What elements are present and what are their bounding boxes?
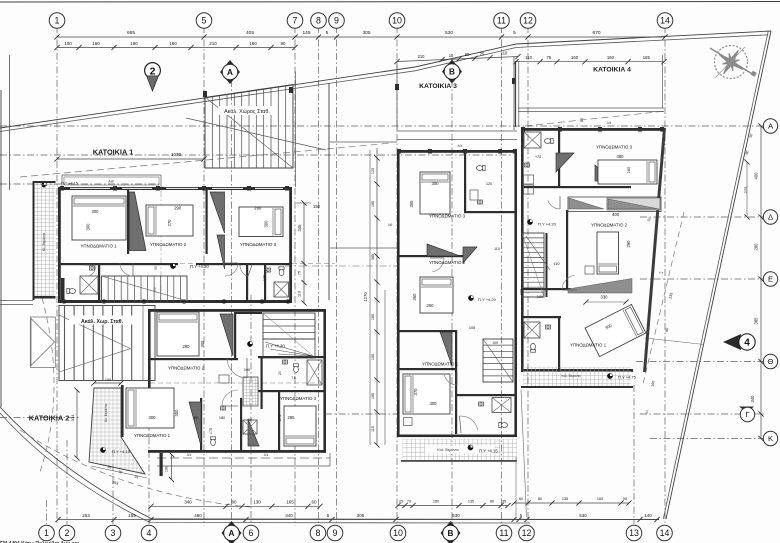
svg-text:160: 160 <box>371 201 375 207</box>
svg-text:300: 300 <box>432 181 440 186</box>
svg-text:160: 160 <box>371 393 375 399</box>
svg-text:170: 170 <box>209 428 213 434</box>
svg-text:105: 105 <box>469 326 475 330</box>
svg-text:5: 5 <box>202 16 207 26</box>
svg-text:75: 75 <box>546 55 551 60</box>
svg-text:130: 130 <box>253 500 261 505</box>
svg-text:100: 100 <box>492 341 498 345</box>
svg-text:290: 290 <box>174 206 182 211</box>
svg-text:60: 60 <box>519 497 523 501</box>
svg-text:1: 1 <box>55 16 60 26</box>
svg-text:1270: 1270 <box>363 292 368 302</box>
svg-text:11: 11 <box>497 16 506 26</box>
svg-text:355: 355 <box>409 200 414 208</box>
svg-text:ΚΑΤΟΙΚΙΑ 1: ΚΑΤΟΙΚΙΑ 1 <box>93 148 134 157</box>
svg-text:Α/ε: Α/ε <box>458 144 463 148</box>
svg-text:100: 100 <box>165 466 169 472</box>
svg-text:ΥΠΝΟΔΩΜΑΤΙΟ 1: ΥΠΝΟΔΩΜΑΤΙΟ 1 <box>422 362 459 367</box>
svg-text:5: 5 <box>513 30 516 36</box>
svg-text:340: 340 <box>750 395 755 403</box>
svg-text:110: 110 <box>298 291 302 297</box>
svg-text:25: 25 <box>399 500 403 504</box>
svg-text:A: A <box>227 68 233 77</box>
svg-text:140: 140 <box>644 513 652 518</box>
svg-text:70: 70 <box>407 500 411 504</box>
svg-text:290: 290 <box>626 240 631 248</box>
svg-text:9: 9 <box>334 16 339 26</box>
svg-text:285: 285 <box>288 415 296 420</box>
svg-text:8: 8 <box>316 528 321 538</box>
svg-text:110: 110 <box>525 55 532 60</box>
svg-text:100: 100 <box>520 289 524 295</box>
svg-text:460: 460 <box>194 513 202 518</box>
svg-text:Π.Υ +4.15: Π.Υ +4.15 <box>112 449 131 454</box>
svg-text:160: 160 <box>169 41 177 46</box>
svg-text:160: 160 <box>607 55 615 60</box>
svg-text:1070: 1070 <box>171 152 182 157</box>
svg-text:75: 75 <box>480 52 485 57</box>
svg-text:340: 340 <box>184 500 192 505</box>
svg-text:Α/ε: Α/ε <box>264 453 269 457</box>
svg-text:4: 4 <box>744 338 750 349</box>
svg-text:K: K <box>768 434 773 443</box>
svg-text:ΚΑΤΟΙΚΙΑ 2: ΚΑΤΟΙΚΙΑ 2 <box>29 414 70 423</box>
svg-text:ΥΠΝΟΔΩΜΑΤΙΟ 2: ΥΠΝΟΔΩΜΑΤΙΟ 2 <box>150 242 187 247</box>
svg-text:80: 80 <box>490 500 494 504</box>
svg-text:290: 290 <box>183 344 191 349</box>
svg-text:300: 300 <box>92 209 100 214</box>
svg-text:Π.Υ +4.20: Π.Υ +4.20 <box>538 222 557 227</box>
svg-text:ΥΠΝΟΔΩΜΑΤΙΟ 3: ΥΠΝΟΔΩΜΑΤΙΟ 3 <box>280 396 317 401</box>
svg-text:Κλ. Βεράντα: Κλ. Βεράντα <box>104 404 108 422</box>
svg-text:A: A <box>229 529 235 538</box>
svg-text:365: 365 <box>371 254 375 260</box>
svg-text:Ακάλ. Χώρος Σταθ.: Ακάλ. Χώρος Σταθ. <box>224 108 270 115</box>
svg-text:120: 120 <box>371 168 375 174</box>
svg-text:150: 150 <box>313 204 321 209</box>
svg-text:160: 160 <box>571 55 579 60</box>
svg-text:530: 530 <box>452 513 460 518</box>
svg-text:400: 400 <box>754 172 759 180</box>
svg-text:Ακάλ. Χωρ. Σταθ.: Ακάλ. Χωρ. Σταθ. <box>81 319 123 325</box>
svg-text:60: 60 <box>311 500 317 505</box>
svg-text:80: 80 <box>665 327 670 332</box>
svg-text:80: 80 <box>538 497 542 501</box>
svg-text:100: 100 <box>153 287 157 293</box>
svg-text:35: 35 <box>502 500 506 504</box>
svg-text:160: 160 <box>371 314 375 320</box>
svg-text:160: 160 <box>249 41 257 46</box>
svg-text:Κλ. Βεράντα: Κλ. Βεράντα <box>42 233 46 251</box>
svg-text:Κολ. Βεράντα: Κολ. Βεράντα <box>437 448 458 452</box>
svg-text:15: 15 <box>449 53 454 58</box>
svg-text:305: 305 <box>200 340 205 348</box>
svg-text:253: 253 <box>82 513 90 518</box>
svg-text:160: 160 <box>433 500 439 504</box>
svg-text:305: 305 <box>362 30 370 36</box>
svg-text:ΥΠΝΟΔΩΜΑΤΙΟ 1: ΥΠΝΟΔΩΜΑΤΙΟ 1 <box>570 343 607 348</box>
svg-text:270: 270 <box>277 414 282 422</box>
svg-text:20: 20 <box>278 371 282 375</box>
svg-text:280: 280 <box>754 243 759 251</box>
svg-text:Α/ε: Α/ε <box>659 271 664 275</box>
svg-text:7: 7 <box>293 16 298 26</box>
svg-text:13: 13 <box>629 528 639 538</box>
svg-text:370: 370 <box>413 388 418 396</box>
svg-text:145: 145 <box>302 30 310 36</box>
svg-text:6: 6 <box>249 528 254 538</box>
svg-text:ΥΠΝΟΔΩΜΑΤΙΟ 2: ΥΠΝΟΔΩΜΑΤΙΟ 2 <box>429 260 466 265</box>
svg-text:Τ.Ε.: Τ.Ε. <box>291 376 297 380</box>
svg-text:ΥΠΝΟΔΩΜΑΤΙΟ 3: ΥΠΝΟΔΩΜΑΤΙΟ 3 <box>240 242 277 247</box>
svg-text:110: 110 <box>501 51 508 56</box>
svg-text:5: 5 <box>326 30 329 36</box>
svg-text:80: 80 <box>580 118 584 122</box>
svg-text:Π.Υ +4.75: Π.Υ +4.75 <box>618 375 637 380</box>
svg-text:2: 2 <box>65 528 70 538</box>
svg-text:95: 95 <box>154 266 158 270</box>
svg-text:Αίθ: Αίθ <box>108 180 113 184</box>
svg-text:334: 334 <box>70 414 75 421</box>
svg-text:Δ: Δ <box>768 213 773 222</box>
svg-text:100: 100 <box>105 378 111 382</box>
svg-text:135: 135 <box>562 497 568 501</box>
svg-text:180: 180 <box>219 416 225 420</box>
svg-text:300: 300 <box>263 220 268 228</box>
svg-text:E: E <box>768 275 773 284</box>
svg-text:60: 60 <box>465 52 470 57</box>
svg-text:Α/ε: Α/ε <box>607 121 612 125</box>
svg-text:110: 110 <box>553 262 559 266</box>
svg-text:90: 90 <box>280 41 286 46</box>
svg-text:75: 75 <box>298 271 302 275</box>
svg-text:ΚΑΤΟΙΚΙΑ 3: ΚΑΤΟΙΚΙΑ 3 <box>419 83 457 90</box>
svg-text:305: 305 <box>357 513 365 518</box>
svg-text:670: 670 <box>592 30 600 36</box>
svg-text:80: 80 <box>231 500 237 505</box>
svg-text:Π.Υ +4.15: Π.Υ +4.15 <box>61 182 78 186</box>
svg-text:3: 3 <box>111 528 116 538</box>
svg-text:260: 260 <box>427 303 435 308</box>
svg-text:Π.Υ +4.20: Π.Υ +4.20 <box>478 297 497 302</box>
svg-text:ΥΠΝΟΔΩΜΑΤΙΟ 1: ΥΠΝΟΔΩΜΑΤΙΟ 1 <box>134 433 171 438</box>
svg-text:300: 300 <box>430 401 438 406</box>
svg-text:165: 165 <box>643 55 651 60</box>
svg-text:14: 14 <box>660 16 670 26</box>
svg-text:ΚΑΤΟΙΚΙΑ 4: ΚΑΤΟΙΚΙΑ 4 <box>593 67 631 74</box>
svg-text:135: 135 <box>468 500 474 504</box>
svg-text:405: 405 <box>246 30 254 36</box>
svg-text:8: 8 <box>316 16 321 26</box>
svg-text:12: 12 <box>522 528 532 538</box>
svg-text:Π.Υ +4.20: Π.Υ +4.20 <box>266 344 285 349</box>
svg-text:110: 110 <box>494 247 500 251</box>
svg-text:270: 270 <box>167 219 172 227</box>
svg-text:95: 95 <box>623 497 627 501</box>
svg-text:Π.Υ +4.15: Π.Υ +4.15 <box>479 449 498 454</box>
svg-text:530: 530 <box>445 30 453 36</box>
svg-text:60: 60 <box>194 416 198 420</box>
svg-text:120: 120 <box>486 182 492 186</box>
svg-text:10: 10 <box>392 16 402 26</box>
svg-text:ΥΠΝΟΔΩΜΑΤΙΟ 3: ΥΠΝΟΔΩΜΑΤΙΟ 3 <box>596 145 633 150</box>
svg-text:190: 190 <box>371 354 375 360</box>
svg-text:170: 170 <box>263 275 267 281</box>
svg-text:B: B <box>449 68 455 77</box>
svg-text:385: 385 <box>754 317 759 325</box>
svg-text:400: 400 <box>612 212 620 217</box>
svg-text:ΥΠΝΟΔΩΜΑΤΙΟ 3: ΥΠΝΟΔΩΜΑΤΙΟ 3 <box>429 214 466 219</box>
svg-text:210: 210 <box>418 54 426 59</box>
svg-text:285: 285 <box>626 166 631 173</box>
svg-text:330: 330 <box>601 295 609 300</box>
svg-text:11: 11 <box>499 528 508 538</box>
svg-text:360: 360 <box>412 293 417 301</box>
svg-text:ΥΠΝΟΔΩΜΑΤΙΟ 1: ΥΠΝΟΔΩΜΑΤΙΟ 1 <box>80 244 117 249</box>
svg-text:Κολ. Βεράντα: Κολ. Βεράντα <box>561 374 580 378</box>
svg-text:160: 160 <box>92 41 100 46</box>
svg-text:Γ: Γ <box>745 410 749 419</box>
svg-text:1: 1 <box>44 528 49 538</box>
svg-text:380: 380 <box>617 154 625 159</box>
svg-text:210: 210 <box>209 41 217 46</box>
svg-text:300: 300 <box>149 415 157 420</box>
svg-text:4: 4 <box>147 528 152 538</box>
svg-text:10: 10 <box>393 528 403 538</box>
svg-text:340: 340 <box>285 513 293 518</box>
svg-text:300: 300 <box>86 223 91 231</box>
svg-text:+70: +70 <box>535 155 541 159</box>
svg-text:ΥΠΝΟΔΩΜΑΤΙΟ 2: ΥΠΝΟΔΩΜΑΤΙΟ 2 <box>168 366 205 371</box>
svg-text:530: 530 <box>579 513 587 518</box>
svg-text:665: 665 <box>127 30 135 36</box>
svg-text:190: 190 <box>130 41 138 46</box>
svg-text:Αίθ: Αίθ <box>388 223 393 227</box>
svg-text:14: 14 <box>660 528 670 538</box>
svg-text:Π.Υ +4.20: Π.Υ +4.20 <box>190 264 209 269</box>
svg-text:160: 160 <box>597 497 603 501</box>
svg-text:Α/ε: Α/ε <box>187 453 192 457</box>
svg-text:100: 100 <box>64 41 72 46</box>
svg-text:290: 290 <box>254 206 262 211</box>
svg-text:ΥΠΝΟΔΩΜΑΤΙΟ 2: ΥΠΝΟΔΩΜΑΤΙΟ 2 <box>591 223 628 228</box>
svg-text:9: 9 <box>333 528 338 538</box>
svg-text:12: 12 <box>523 16 533 26</box>
svg-text:100: 100 <box>537 295 543 299</box>
svg-text:165: 165 <box>286 500 294 505</box>
svg-text:300: 300 <box>174 409 179 417</box>
svg-text:155: 155 <box>128 513 136 518</box>
svg-text:345: 345 <box>297 224 302 232</box>
svg-text:115: 115 <box>371 426 375 432</box>
svg-text:B: B <box>448 529 454 538</box>
svg-text:Θ: Θ <box>768 357 774 366</box>
